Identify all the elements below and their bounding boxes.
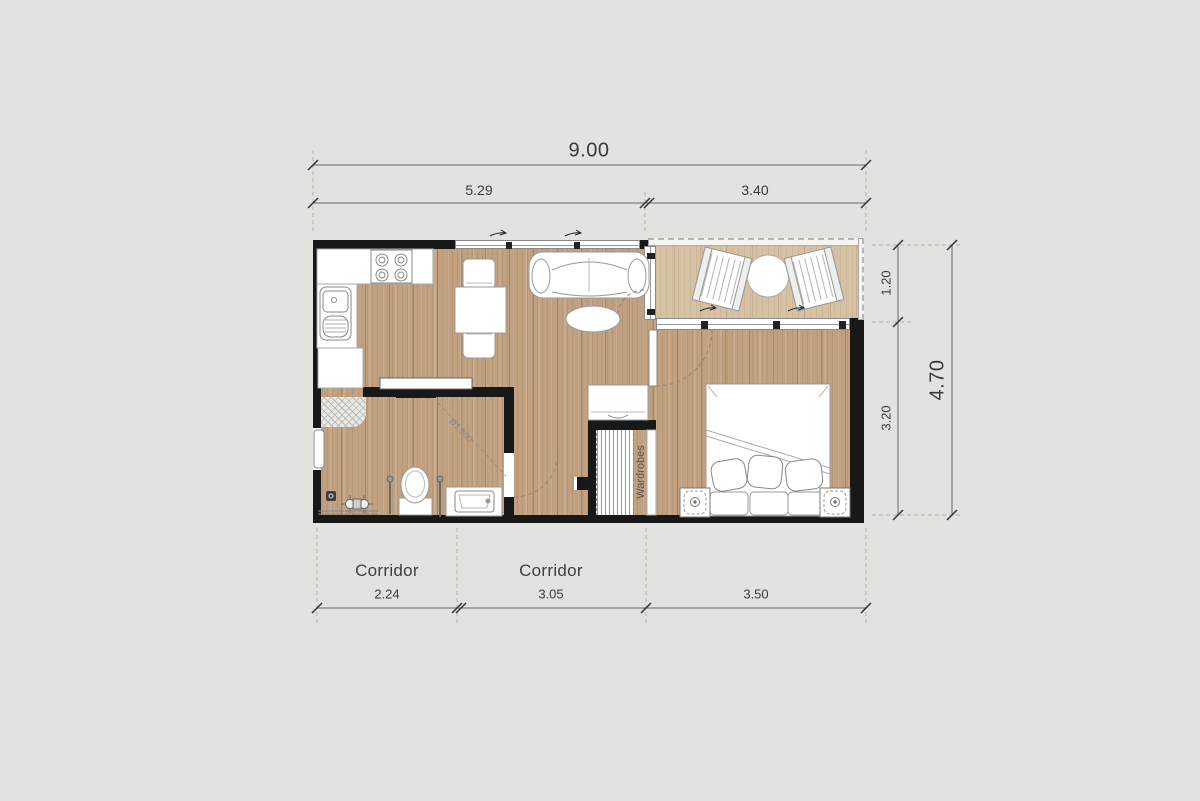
lounge-chair-left [692,247,752,311]
dim-top-seg2: 3.40 [741,182,768,198]
corridor-label-2: Corridor [519,561,583,581]
kitchen-sink [320,287,351,340]
dim-right-total: 4.70 [927,360,950,401]
terrace-table [747,255,789,297]
nightstand-right [820,488,850,517]
toilet [399,467,432,515]
coffee-table [566,306,620,332]
sliding-door-kitchen [380,378,472,398]
dining-set [455,259,506,358]
corridor-label-1: Corridor [355,561,419,581]
sofa [529,252,649,298]
dim-right-seg1: 1.20 [879,270,894,295]
dim-bottom-seg2: 3.05 [538,587,563,602]
stove [371,250,412,283]
dim-bottom-seg3: 3.50 [743,587,768,602]
shower-fittings [318,491,378,514]
lounge-chair-right [784,247,844,311]
dresser [588,385,648,420]
dim-bottom-seg1: 2.24 [374,587,399,602]
vanity-sink [446,487,502,516]
nightstand-left [680,488,710,517]
dim-top-total: 9.00 [569,140,610,163]
dim-right-seg2: 3.20 [879,405,894,430]
dim-top-seg1: 5.29 [465,182,492,198]
wardrobe-side-panel [647,430,656,515]
floor-plan-canvas: 9.00 5.29 3.40 1.20 3.20 4.70 Corridor C… [0,0,1200,801]
bedroom-door [649,330,712,386]
wardrobes-label: Wardrobes [635,445,647,498]
plan-vector-layer [0,0,1200,801]
bed [706,384,830,516]
entry-door [313,428,324,470]
bathroom-door [504,453,558,497]
